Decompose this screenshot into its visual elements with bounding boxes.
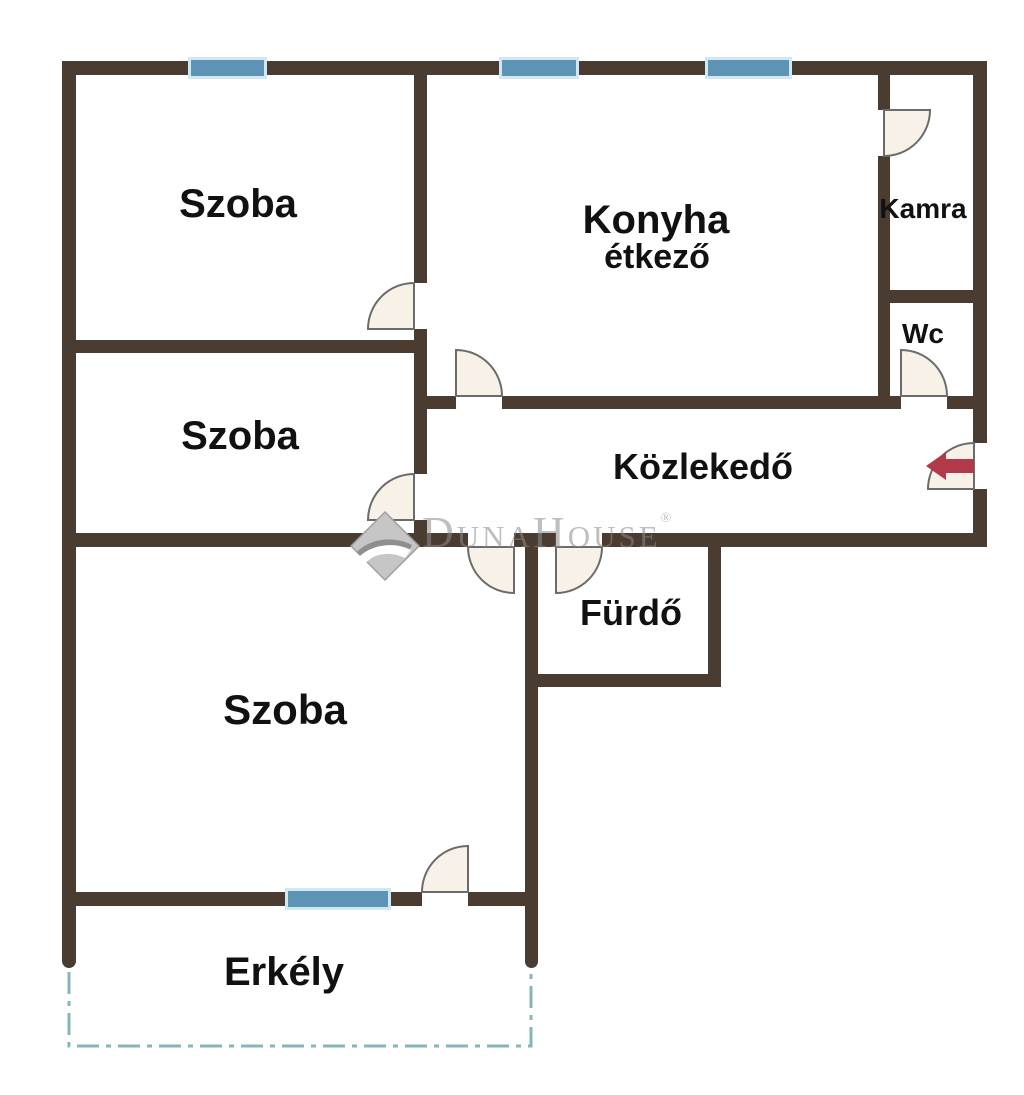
dunahouse-logo-icon xyxy=(351,512,419,580)
door-arc-szoba-big xyxy=(468,547,514,593)
room-label-szoba-mid: Szoba xyxy=(181,416,299,456)
floor-plan: Szoba Konyha étkező Kamra Wc Szoba Közle… xyxy=(0,0,1024,1095)
door-arc-szoba-top xyxy=(368,283,414,329)
room-label-etkezo: étkező xyxy=(604,240,710,274)
room-label-konyha: Konyha xyxy=(583,200,730,240)
door-arc-konyha xyxy=(456,350,502,396)
door-arc-furdo xyxy=(556,547,602,593)
room-label-wc: Wc xyxy=(902,320,944,348)
room-label-furdo: Fürdő xyxy=(580,595,682,631)
room-label-kozlekedo: Közlekedő xyxy=(613,449,793,485)
door-arc-kamra xyxy=(884,110,930,156)
room-label-szoba-big: Szoba xyxy=(223,689,347,731)
door-arc-balcony xyxy=(422,846,468,892)
symbols-overlay xyxy=(0,0,1024,1095)
room-label-szoba-top: Szoba xyxy=(179,184,297,224)
room-label-erkely: Erkély xyxy=(224,952,344,992)
door-arc-szoba-mid xyxy=(368,474,414,520)
room-label-kamra: Kamra xyxy=(879,195,966,223)
door-arc-wc xyxy=(901,350,947,396)
